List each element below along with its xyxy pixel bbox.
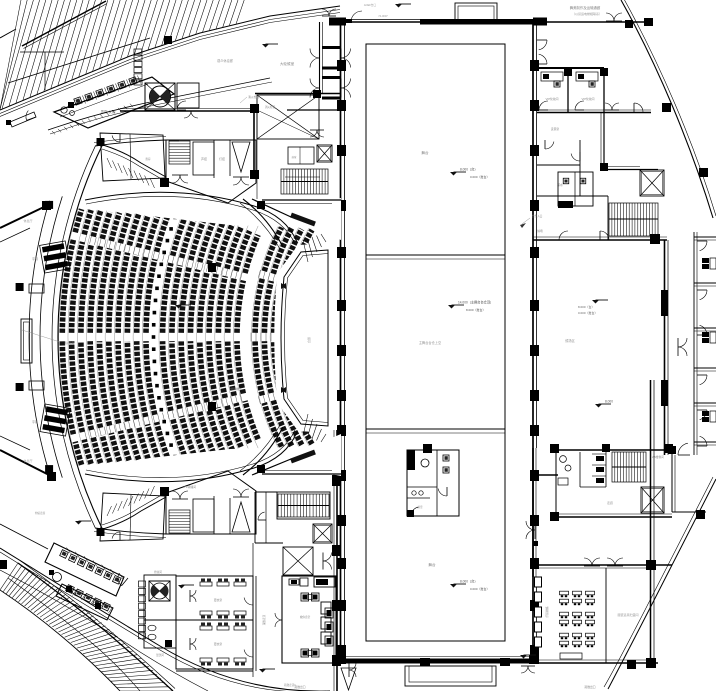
- svg-text:更衣室: 更衣室: [214, 642, 223, 646]
- svg-text:晚休息室: 晚休息室: [300, 615, 311, 619]
- svg-text:8.000: 8.000: [605, 400, 613, 404]
- svg-text:服装道具贮藏间: 服装道具贮藏间: [617, 612, 638, 617]
- svg-text:疏散出口: 疏散出口: [584, 685, 595, 689]
- svg-text:TV转播间: TV转播间: [184, 485, 196, 489]
- svg-text:疏散走道: 疏散走道: [262, 614, 266, 625]
- svg-text:更衣室: 更衣室: [214, 598, 223, 602]
- svg-text:0.000（舞台）: 0.000（舞台）: [470, 174, 490, 179]
- svg-text:疏散出口: 疏散出口: [294, 685, 305, 689]
- svg-text:8.000（台）: 8.000（台）: [578, 304, 595, 309]
- svg-text:寄存: 寄存: [145, 157, 151, 161]
- svg-text:消火栓箱: 消火栓箱: [265, 105, 276, 109]
- svg-text:主舞台台仓上空: 主舞台台仓上空: [419, 340, 441, 345]
- svg-text:声控: 声控: [201, 156, 207, 161]
- svg-text:候场区: 候场区: [565, 338, 575, 343]
- svg-text:伸缩走廊: 伸缩走廊: [35, 511, 46, 515]
- svg-text:8.000（台）: 8.000（台）: [460, 579, 478, 584]
- svg-text:0.000（舞台）: 0.000（舞台）: [470, 586, 490, 591]
- svg-text:候场: 候场: [537, 229, 543, 233]
- svg-text:字幕: 字幕: [32, 419, 38, 424]
- svg-text:前室: 前室: [292, 155, 297, 159]
- svg-text:舞台: 舞台: [428, 562, 436, 567]
- svg-text:舞台: 舞台: [421, 150, 429, 155]
- svg-text:乐队排练: 乐队排练: [545, 606, 549, 617]
- svg-text:0.000（舞台）: 0.000（舞台）: [578, 310, 598, 315]
- svg-text:14.000（主舞台台仓顶）: 14.000（主舞台台仓顶）: [458, 300, 493, 305]
- svg-text:观众休息廊: 观众休息廊: [217, 58, 234, 63]
- svg-text:走廊: 走廊: [607, 500, 613, 505]
- svg-text:大轮候室: 大轮候室: [280, 61, 295, 66]
- svg-text:74-0007: 74-0007: [378, 14, 388, 18]
- svg-text:台唇: 台唇: [306, 337, 311, 343]
- svg-text:（以货运电梯相联系）: （以货运电梯相联系）: [572, 11, 602, 16]
- svg-text:舞美制作及运输通廊: 舞美制作及运输通廊: [570, 5, 601, 10]
- svg-text:8.000（台）: 8.000（台）: [460, 167, 478, 172]
- svg-text:休息厅: 休息厅: [23, 458, 32, 463]
- svg-text:台仓入口: 台仓入口: [532, 214, 543, 218]
- svg-text:8.000（舞台）: 8.000（舞台）: [466, 307, 486, 312]
- svg-text:抢妆间: 抢妆间: [154, 570, 162, 574]
- svg-text:消火栓箱: 消火栓箱: [64, 341, 75, 345]
- svg-text:7排轮椅位: 7排轮椅位: [229, 387, 241, 391]
- svg-text:消火栓箱: 消火栓箱: [248, 95, 259, 99]
- svg-text:字幕: 字幕: [32, 256, 38, 261]
- svg-text:AOEF台口: AOEF台口: [364, 3, 377, 7]
- svg-text:盥洗间: 盥洗间: [156, 653, 164, 657]
- svg-text:贵宾室: 贵宾室: [551, 127, 560, 131]
- svg-text:休息厅: 休息厅: [23, 218, 32, 223]
- svg-text:VIP化妆间: VIP化妆间: [546, 97, 559, 101]
- svg-text:灯控: 灯控: [219, 156, 225, 161]
- svg-text:VIP化妆间: VIP化妆间: [582, 97, 595, 101]
